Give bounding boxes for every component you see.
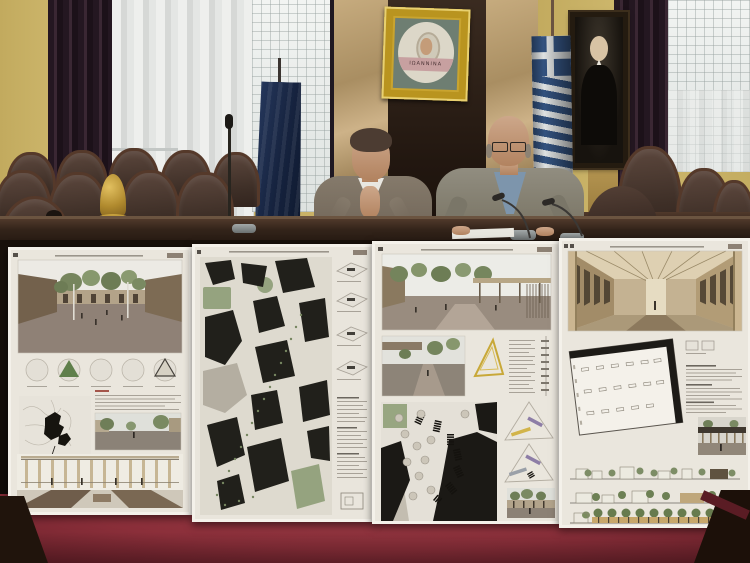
presentation-board-3 [372,241,561,524]
mosaic-disc: ΙΩΑΝΝΙΝΑ [397,21,455,85]
board-3-graphic [375,244,558,521]
emblem-text: ΙΩΑΝΝΙΝΑ [409,61,442,68]
glasses [492,142,508,152]
gooseneck-microphones [430,178,600,242]
board-2-graphic [195,247,371,519]
presentation-board-2 [192,244,374,522]
city-emblem-mosaic: ΙΩΑΝΝΙΝΑ [393,18,459,90]
council-chamber-photo: ΙΩΑΝΝΙΝΑ [0,0,750,563]
window-right-sheer [668,90,750,172]
presentation-board-4 [559,238,750,528]
microphone-tip [225,114,233,129]
board-4-graphic [562,241,748,525]
flag-pole-left [278,58,281,86]
portrait-head [590,36,608,61]
official-right-head-bald [488,116,529,166]
mosaic-band: ΙΩΑΝΝΙΝΑ [397,57,454,73]
microphone-base [232,224,256,233]
saint-face [420,38,432,56]
glasses [510,142,526,152]
official-left-hands-clasped [360,186,380,218]
board-1-graphic [11,250,189,512]
microphone-stand [228,126,231,226]
eu-flag [255,81,304,218]
official-left-hair [350,128,392,152]
city-emblem-frame: ΙΩΑΝΝΙΝΑ [381,7,470,102]
presentation-board-1 [8,247,192,515]
